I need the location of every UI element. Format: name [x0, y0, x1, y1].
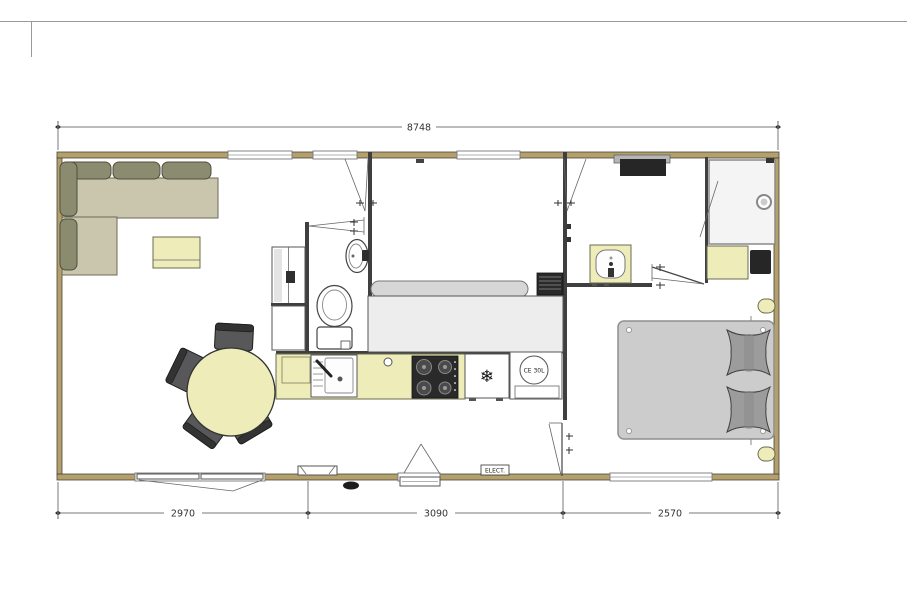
- bedroom-2: [368, 273, 563, 352]
- water-heater-drawer: [515, 386, 559, 398]
- flush-button: [341, 341, 350, 349]
- dining-table: [187, 348, 275, 436]
- drain: [338, 377, 343, 382]
- overall-width-dimension: 8748: [407, 123, 431, 134]
- bed-button: [627, 429, 632, 434]
- wall-top: [57, 152, 779, 158]
- base-cabinet: [282, 357, 310, 383]
- sliding-patio-door: [135, 473, 265, 491]
- vanity-basin: [590, 245, 631, 286]
- hanger-mark: [554, 200, 562, 206]
- faucet: [362, 250, 369, 261]
- wall-vent: [416, 159, 424, 163]
- gas-hob: [412, 356, 458, 398]
- washbasin: [346, 240, 369, 273]
- wall-living-wc: [305, 222, 309, 352]
- water-heater-label: CE 30L: [524, 368, 546, 375]
- shower-head: [766, 158, 774, 163]
- segment-left-dimension: 2970: [171, 509, 195, 520]
- storage-cabinets: [271, 247, 306, 350]
- patio-door-leaf-right: [201, 474, 263, 479]
- drain: [352, 255, 355, 258]
- sofa-cushion: [60, 219, 77, 270]
- wc-door: [309, 217, 364, 235]
- sofa-cushion: [162, 162, 211, 179]
- door-handle: [350, 219, 358, 226]
- sofa-cushion: [113, 162, 160, 179]
- sofa-seat-top: [62, 178, 218, 218]
- patio-door-swing: [139, 480, 262, 491]
- bed-button: [627, 328, 632, 333]
- dimension-bottom: 2970 3090 2570: [55, 481, 781, 520]
- page-frame: [0, 22, 907, 58]
- sofa-cushion: [60, 162, 77, 216]
- electrical-panel: ELECT.: [481, 465, 509, 475]
- shower-room: [590, 155, 775, 289]
- patio-door-leaf-left: [137, 474, 199, 479]
- master-door: [549, 423, 573, 476]
- kitchen: ❄ CE 30L ELECT.: [276, 352, 562, 475]
- dresser: [707, 246, 748, 279]
- bed2-pillow: [371, 281, 528, 297]
- door-handle: [656, 264, 665, 271]
- fridge: ❄: [465, 354, 509, 401]
- bedside-shelf: [758, 299, 775, 313]
- kitchen-sink: [311, 355, 357, 397]
- cabinet-handle: [286, 271, 295, 283]
- stool: [750, 250, 771, 274]
- shower: [700, 158, 775, 244]
- floor-plan-page: 8748 2970 3090 2570: [0, 0, 907, 600]
- wall-cabinet: [620, 159, 666, 176]
- faucet: [608, 268, 614, 277]
- low-cabinet: [272, 306, 305, 350]
- wall-bedroom2-master: [563, 152, 567, 420]
- door-handle: [350, 228, 358, 235]
- hinge-mark: [567, 237, 571, 242]
- bedside-unit-hatched: [537, 273, 563, 295]
- electrical-panel-label: ELECT.: [485, 468, 505, 475]
- dining-chair: [214, 323, 253, 351]
- exterior-light: [343, 482, 359, 490]
- ensuite-door: [652, 264, 704, 289]
- bed2-mattress: [368, 296, 563, 352]
- wc-room: [309, 217, 369, 349]
- door-swing-right: [554, 159, 586, 211]
- dining-set: [165, 323, 275, 450]
- drain: [610, 257, 613, 260]
- floor-plan-canvas: 8748 2970 3090 2570: [0, 0, 907, 600]
- door-handle: [656, 282, 665, 289]
- entrance-door-swing-leaf: [421, 444, 440, 474]
- entrance-door-swing-arc: [404, 444, 421, 473]
- door-swing-left: [345, 159, 377, 211]
- wall-ensuite: [567, 283, 652, 287]
- gas-point: [384, 358, 392, 366]
- segment-middle-dimension: 3090: [424, 509, 448, 520]
- bed-button: [761, 328, 766, 333]
- hinge-mark: [567, 224, 571, 229]
- segment-right-dimension: 2570: [658, 509, 682, 520]
- coffee-table: [153, 237, 200, 268]
- door-handle: [566, 433, 573, 440]
- door-handle: [566, 447, 573, 454]
- dimension-top: 8748: [55, 121, 781, 150]
- water-heater: CE 30L: [510, 352, 562, 399]
- entrance-door: [398, 444, 440, 486]
- toilet: [317, 286, 352, 350]
- master-bedroom: [549, 299, 775, 476]
- fridge-snowflake-icon: ❄: [480, 367, 494, 387]
- hanger-mark: [567, 200, 575, 206]
- bedside-shelf: [758, 447, 775, 461]
